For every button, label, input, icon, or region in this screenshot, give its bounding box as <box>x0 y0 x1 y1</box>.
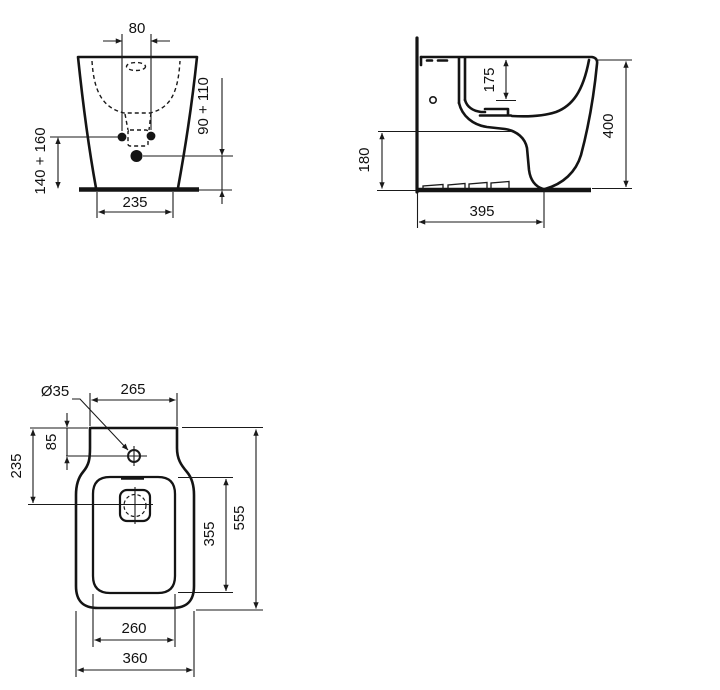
plan-view: Ø35 265 85 235 355 <box>8 381 263 677</box>
dim-front-inlet-height-label: 90 + 110 <box>195 77 212 135</box>
dim-plan-tap-offset: 85 <box>30 413 88 470</box>
front-body-outline <box>78 57 197 188</box>
dim-side-overall-depth-label: 395 <box>469 203 494 220</box>
side-bowl-back-wall <box>459 58 465 103</box>
front-taphole-dashed <box>127 63 146 71</box>
dim-plan-drain-offset-label: 235 <box>8 453 25 478</box>
dim-plan-back-width-label: 265 <box>120 381 145 398</box>
front-drain-dashed <box>128 130 148 146</box>
drawing-canvas: 80 140 + 160 90 + 110 235 <box>0 0 720 690</box>
side-body-outline <box>421 57 597 189</box>
dim-plan-bowl-length: 355 <box>178 478 233 593</box>
side-wall-hole <box>430 97 436 103</box>
dim-side-inlet-height-label: 180 <box>356 147 373 172</box>
dim-plan-tap-diameter-label: Ø35 <box>41 383 69 400</box>
dim-side-bowl-depth-label: 175 <box>481 67 498 92</box>
dim-front-base-width: 235 <box>97 192 173 218</box>
dim-side-overall-height-label: 400 <box>600 113 617 138</box>
dim-front-inlet-height: 90 + 110 <box>195 77 222 204</box>
dim-front-base-width-label: 235 <box>122 194 147 211</box>
front-bowl-dashed <box>92 61 180 113</box>
front-drain-funnel-dashed <box>125 113 151 130</box>
dim-plan-bowl-width: 260 <box>93 594 175 647</box>
front-view: 80 140 + 160 90 + 110 235 <box>32 20 233 218</box>
side-bowl-shelf <box>465 100 511 116</box>
front-fixing-hole-right <box>147 132 156 141</box>
dim-side-bowl-depth: 175 <box>481 60 516 101</box>
dim-plan-bowl-width-label: 260 <box>121 620 146 637</box>
dim-plan-tap-offset-label: 85 <box>43 434 60 451</box>
dim-plan-overall-width-label: 360 <box>122 650 147 667</box>
dim-front-tap-spacing: 80 <box>103 20 170 131</box>
dim-plan-overall-length-label: 555 <box>231 505 248 530</box>
dim-side-overall-depth: 395 <box>418 191 545 228</box>
dim-side-overall-height: 400 <box>592 60 632 189</box>
dim-plan-back-width: 265 <box>90 381 177 426</box>
dim-plan-drain-offset: 235 <box>8 430 33 504</box>
dim-side-inlet-height: 180 <box>356 132 513 189</box>
front-water-inlet <box>131 150 143 162</box>
dim-plan-bowl-length-label: 355 <box>201 521 218 546</box>
dim-front-tap-spacing-label: 80 <box>129 20 146 37</box>
technical-drawing-bidet: 80 140 + 160 90 + 110 235 <box>0 0 720 690</box>
side-view: 175 400 180 395 <box>356 38 632 228</box>
dim-front-fixing-height-label: 140 + 160 <box>32 127 49 194</box>
side-bowl-front-wall <box>512 60 589 116</box>
